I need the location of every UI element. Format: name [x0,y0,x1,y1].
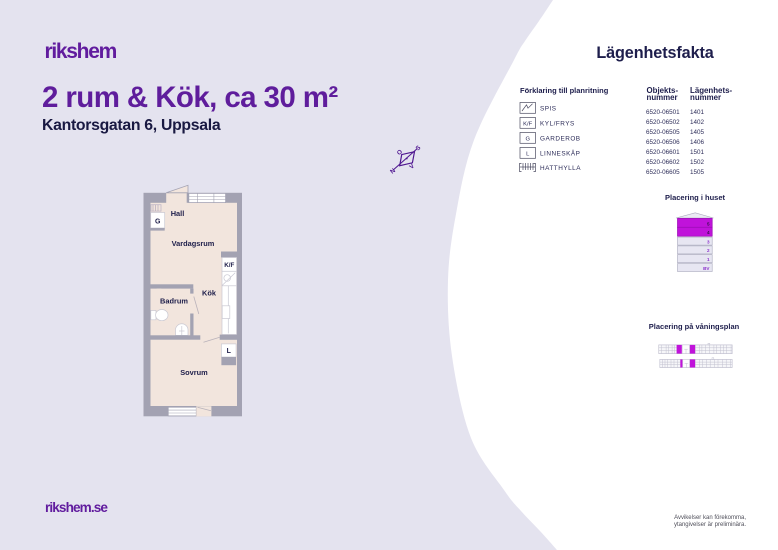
svg-text:G: G [155,219,161,226]
svg-text:N: N [389,167,397,176]
svg-text:1: 1 [707,257,710,262]
svg-text:3: 3 [707,239,710,244]
svg-text:L: L [227,348,232,355]
svg-text:KYL/FRYS: KYL/FRYS [540,121,575,128]
svg-text:SPIS: SPIS [540,106,557,113]
svg-text:BV: BV [703,266,710,271]
svg-text:LINNESKÅP: LINNESKÅP [540,149,580,158]
svg-text:V: V [408,162,416,171]
svg-text:5: 5 [707,221,710,226]
svg-text:K/F: K/F [224,262,234,269]
svg-text:GARDEROB: GARDEROB [540,136,581,143]
svg-text:Sovrum: Sovrum [180,368,208,377]
svg-text:Hall: Hall [171,209,185,218]
svg-text:4: 4 [707,230,710,235]
svg-text:G: G [525,137,530,143]
svg-text:Vardagsrum: Vardagsrum [172,239,215,248]
svg-text:Kök: Kök [202,289,217,298]
svg-text:2: 2 [707,248,710,253]
svg-text:K/F: K/F [523,122,532,128]
svg-text:O: O [396,148,404,157]
svg-text:HATTHYLLA: HATTHYLLA [540,165,581,172]
svg-text:Badrum: Badrum [160,297,188,306]
svg-text:S: S [415,144,423,152]
